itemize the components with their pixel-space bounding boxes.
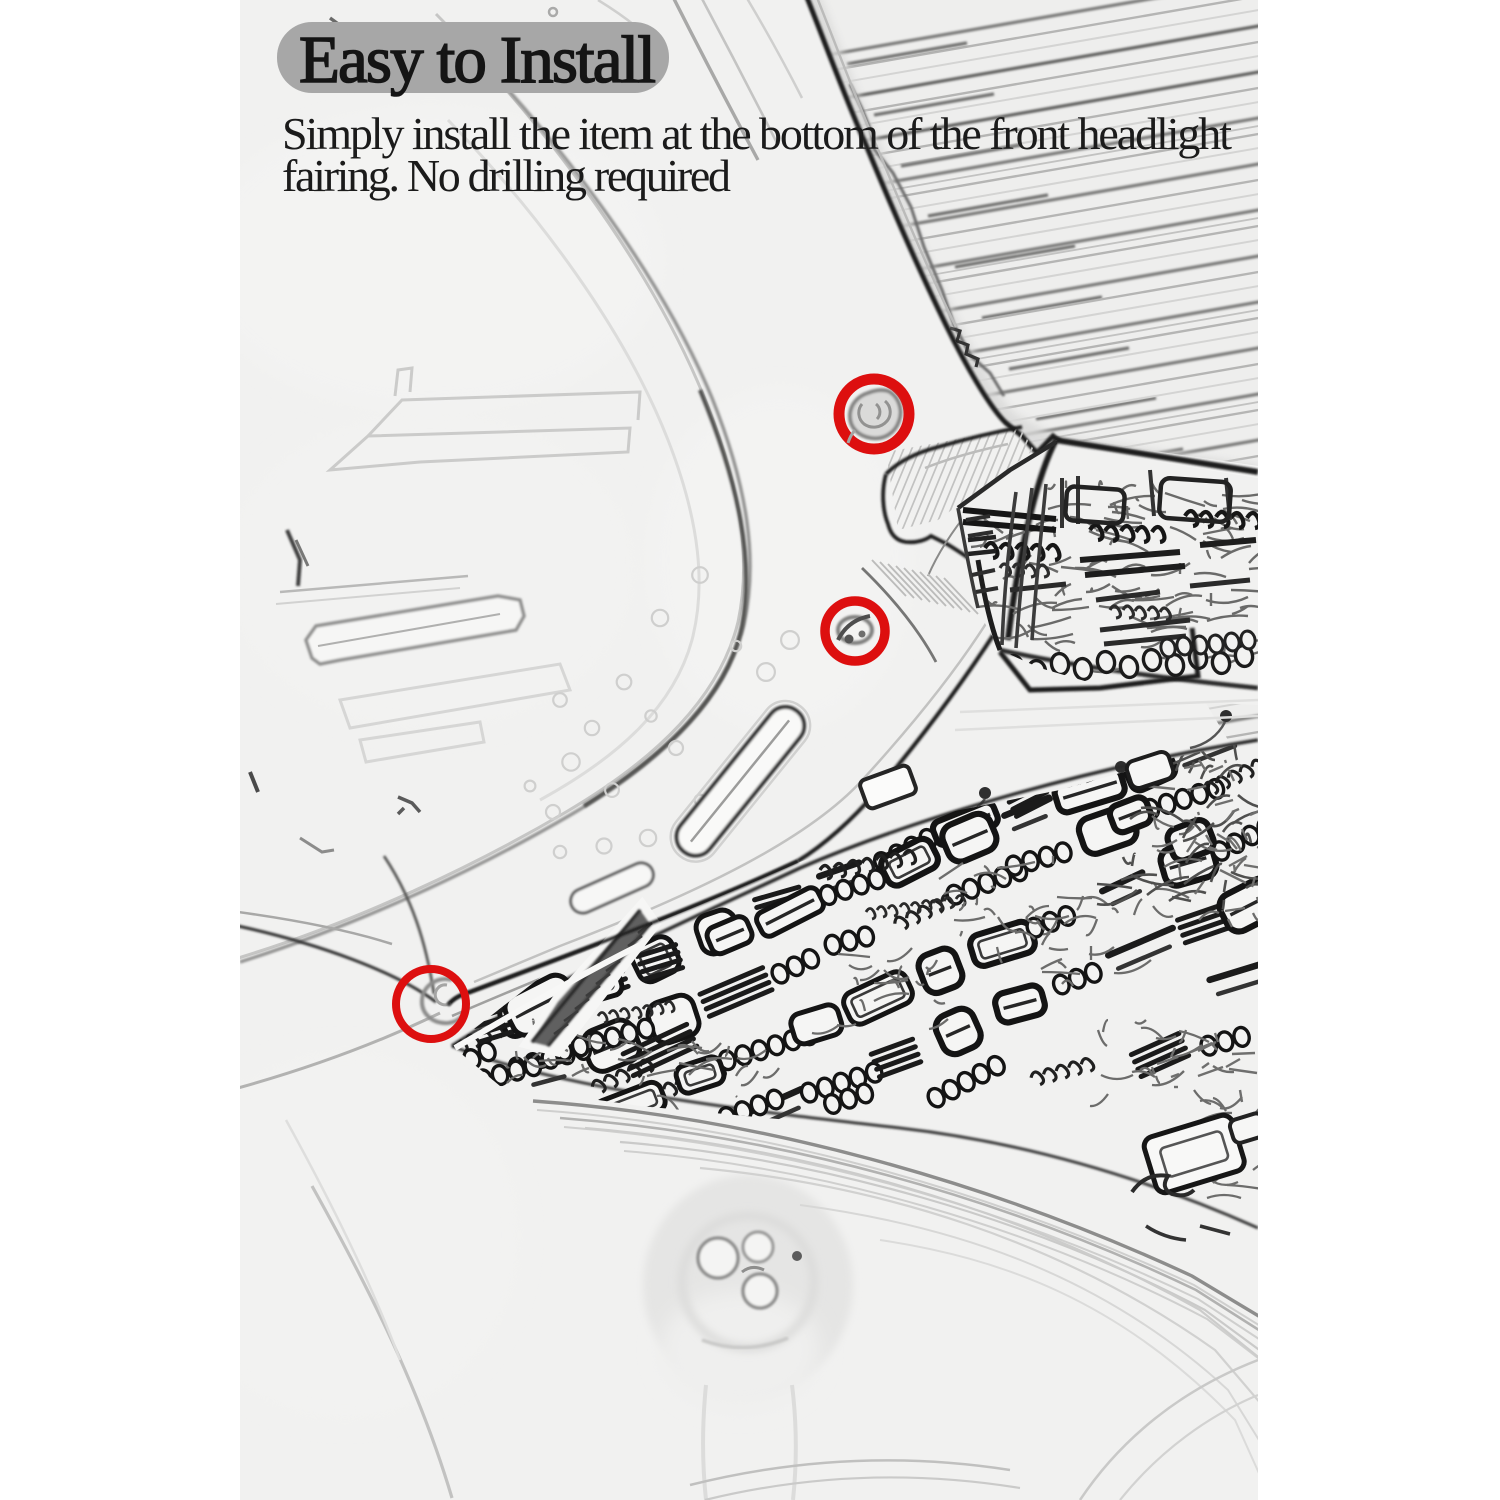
svg-text:fairing. No drilling required: fairing. No drilling required (282, 150, 731, 201)
svg-text:Easy to Install: Easy to Install (299, 23, 656, 97)
